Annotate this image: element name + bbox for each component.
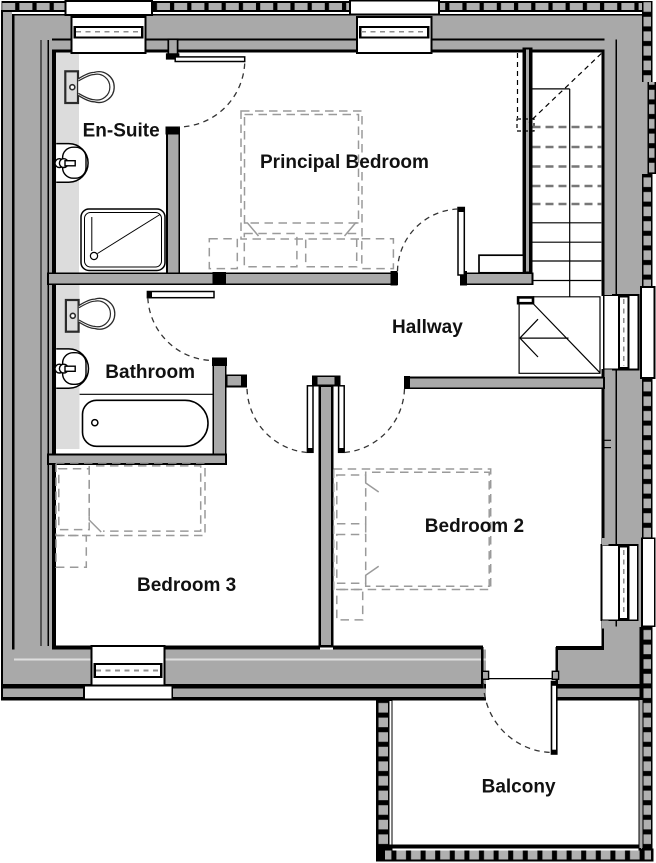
- svg-text:Bathroom: Bathroom: [105, 362, 195, 383]
- svg-text:Bedroom 3: Bedroom 3: [137, 575, 236, 596]
- svg-text:Hallway: Hallway: [392, 317, 463, 338]
- svg-text:Balcony: Balcony: [482, 777, 556, 798]
- svg-text:Principal Bedroom: Principal Bedroom: [260, 152, 429, 173]
- svg-text:Bedroom 2: Bedroom 2: [425, 516, 524, 537]
- svg-text:En-Suite: En-Suite: [83, 121, 160, 142]
